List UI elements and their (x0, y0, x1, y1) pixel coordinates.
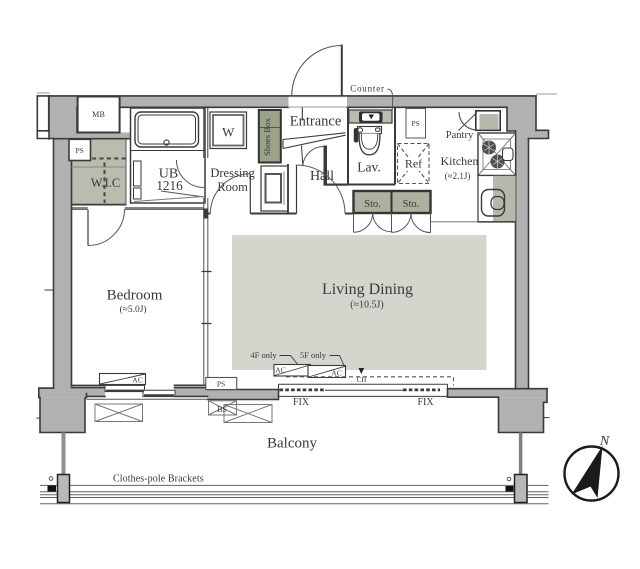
svg-text:Balcony: Balcony (267, 436, 317, 452)
svg-text:BS: BS (217, 405, 227, 414)
svg-text:FIX: FIX (293, 397, 310, 408)
svg-text:AC: AC (331, 368, 341, 377)
svg-text:Ref: Ref (405, 157, 422, 171)
svg-text:Living Dining: Living Dining (322, 281, 413, 298)
svg-text:AC: AC (275, 366, 285, 375)
svg-text:FIX: FIX (417, 397, 434, 408)
svg-text:W: W (222, 125, 235, 140)
svg-text:MB: MB (92, 110, 105, 119)
svg-text:(≈10.5J): (≈10.5J) (350, 299, 384, 310)
svg-text:PS: PS (217, 380, 225, 389)
svg-text:Sto.: Sto. (364, 199, 381, 210)
svg-text:AC: AC (132, 375, 142, 384)
svg-text:Pantry: Pantry (446, 130, 474, 141)
svg-text:(≈2.1J): (≈2.1J) (445, 171, 471, 181)
svg-text:Sto.: Sto. (403, 199, 420, 210)
svg-text:Shoes Box: Shoes Box (262, 117, 272, 155)
svg-text:Entrance: Entrance (290, 113, 342, 129)
svg-text:Clothes-pole Brackets: Clothes-pole Brackets (113, 474, 204, 485)
svg-text:Counter: Counter (350, 84, 385, 94)
svg-text:PS: PS (76, 146, 84, 155)
svg-text:Lav.: Lav. (357, 160, 381, 175)
svg-text:W.I.C: W.I.C (91, 176, 120, 190)
svg-text:Room: Room (217, 180, 248, 194)
svg-text:5F only: 5F only (300, 350, 327, 360)
svg-text:4F only: 4F only (250, 350, 277, 360)
svg-text:PS: PS (412, 119, 420, 128)
svg-text:Kitchen: Kitchen (441, 154, 479, 168)
svg-text:Hall: Hall (310, 169, 334, 184)
svg-text:Bedroom: Bedroom (107, 288, 163, 304)
svg-text:(≈5.0J): (≈5.0J) (119, 304, 146, 315)
svg-text:N: N (599, 434, 610, 449)
svg-text:1216: 1216 (156, 178, 183, 193)
